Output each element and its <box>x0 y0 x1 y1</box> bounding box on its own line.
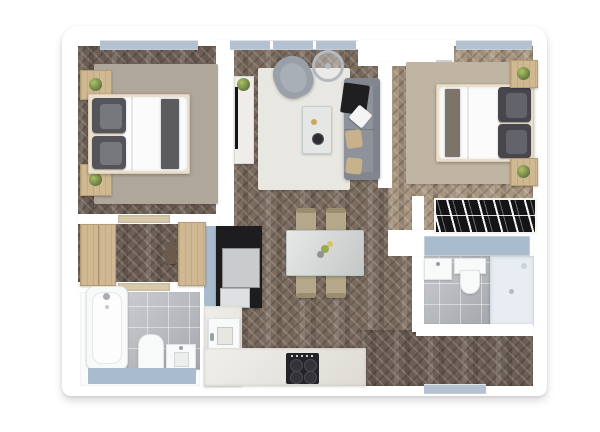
pillow-stack <box>498 124 531 158</box>
appliance-top <box>222 248 260 288</box>
plant-icon <box>89 173 102 186</box>
tan-pillow <box>345 129 363 149</box>
decor-bowl <box>312 133 324 145</box>
plant-icon <box>517 165 530 178</box>
plant-icon <box>237 78 250 91</box>
cabinet-divider <box>98 225 99 285</box>
wall-corridor-closet <box>412 196 424 332</box>
wall-under-bathroom2 <box>416 324 533 336</box>
living-window <box>230 40 358 50</box>
nightstand <box>510 60 538 88</box>
bottom-window <box>424 384 486 394</box>
pillow-stack <box>92 136 126 169</box>
chair-back <box>296 293 316 298</box>
faucet-icon <box>179 346 183 350</box>
round-decor <box>312 50 344 82</box>
pillow-stack <box>92 98 126 133</box>
open-wardrobe-clothes <box>434 198 537 234</box>
kitchen-tall-unit <box>216 226 262 308</box>
bedroom1-doorway <box>118 215 170 223</box>
faucet-icon <box>210 333 214 341</box>
chair-back <box>296 208 316 213</box>
pillow-stack <box>498 87 531 122</box>
wardrobe-rail <box>436 215 535 216</box>
basin-inner <box>174 352 189 367</box>
faucet-icon <box>436 262 440 266</box>
bedroom1-bed <box>88 94 190 174</box>
sofa <box>344 78 380 180</box>
bedroom2-window <box>456 40 532 50</box>
plant-icon <box>517 67 530 80</box>
burner-icon <box>304 371 317 384</box>
toilet <box>454 258 484 294</box>
nightstand <box>510 158 538 186</box>
kitchen-counter-bottom <box>204 348 366 386</box>
shower-head <box>521 263 527 269</box>
appliance-bottom <box>220 288 250 308</box>
chair-back <box>326 208 346 213</box>
shower-tray <box>490 256 534 326</box>
bed-runner <box>445 89 460 157</box>
bed-runner <box>161 99 179 169</box>
wall-bedroom1-living <box>216 40 234 226</box>
armchair-seat <box>275 59 311 97</box>
tan-pillow <box>345 157 363 175</box>
coffee-table <box>302 106 332 154</box>
closet-dresser <box>424 236 530 256</box>
cooktop <box>286 353 319 384</box>
sink-basin <box>217 327 233 345</box>
hall-cabinet <box>80 224 116 286</box>
hall-cabinet <box>178 222 206 286</box>
tub-inner <box>92 292 122 364</box>
bath-mat <box>88 368 196 384</box>
wall-living-bedroom2 <box>378 62 392 188</box>
corridor-floor <box>360 330 533 386</box>
bedroom2-bed <box>436 84 534 162</box>
sofa-back <box>373 78 380 180</box>
duvet-fold <box>131 97 133 171</box>
wall-rack <box>166 242 176 264</box>
bedroom1-window <box>100 40 198 50</box>
decor-gold <box>311 119 317 125</box>
tub-drain <box>105 305 109 309</box>
cooktop-knobs <box>291 355 315 357</box>
chair-back <box>326 293 346 298</box>
tv-screen <box>235 87 238 149</box>
burner-icon <box>290 371 303 384</box>
toilet-bowl <box>460 270 480 294</box>
tv-console <box>234 76 254 164</box>
flowers-icon <box>327 241 333 247</box>
duvet-fold <box>467 87 469 159</box>
plant-icon <box>89 78 102 91</box>
washbasin <box>424 258 452 280</box>
tub-faucet-icon <box>103 293 110 300</box>
vase-icon <box>317 251 324 258</box>
decor-center <box>325 63 331 69</box>
toilet <box>138 334 164 370</box>
bathtub <box>86 286 128 370</box>
shower-drain <box>509 289 514 294</box>
floor-plan-canvas <box>0 0 600 432</box>
dining-table <box>286 230 364 276</box>
